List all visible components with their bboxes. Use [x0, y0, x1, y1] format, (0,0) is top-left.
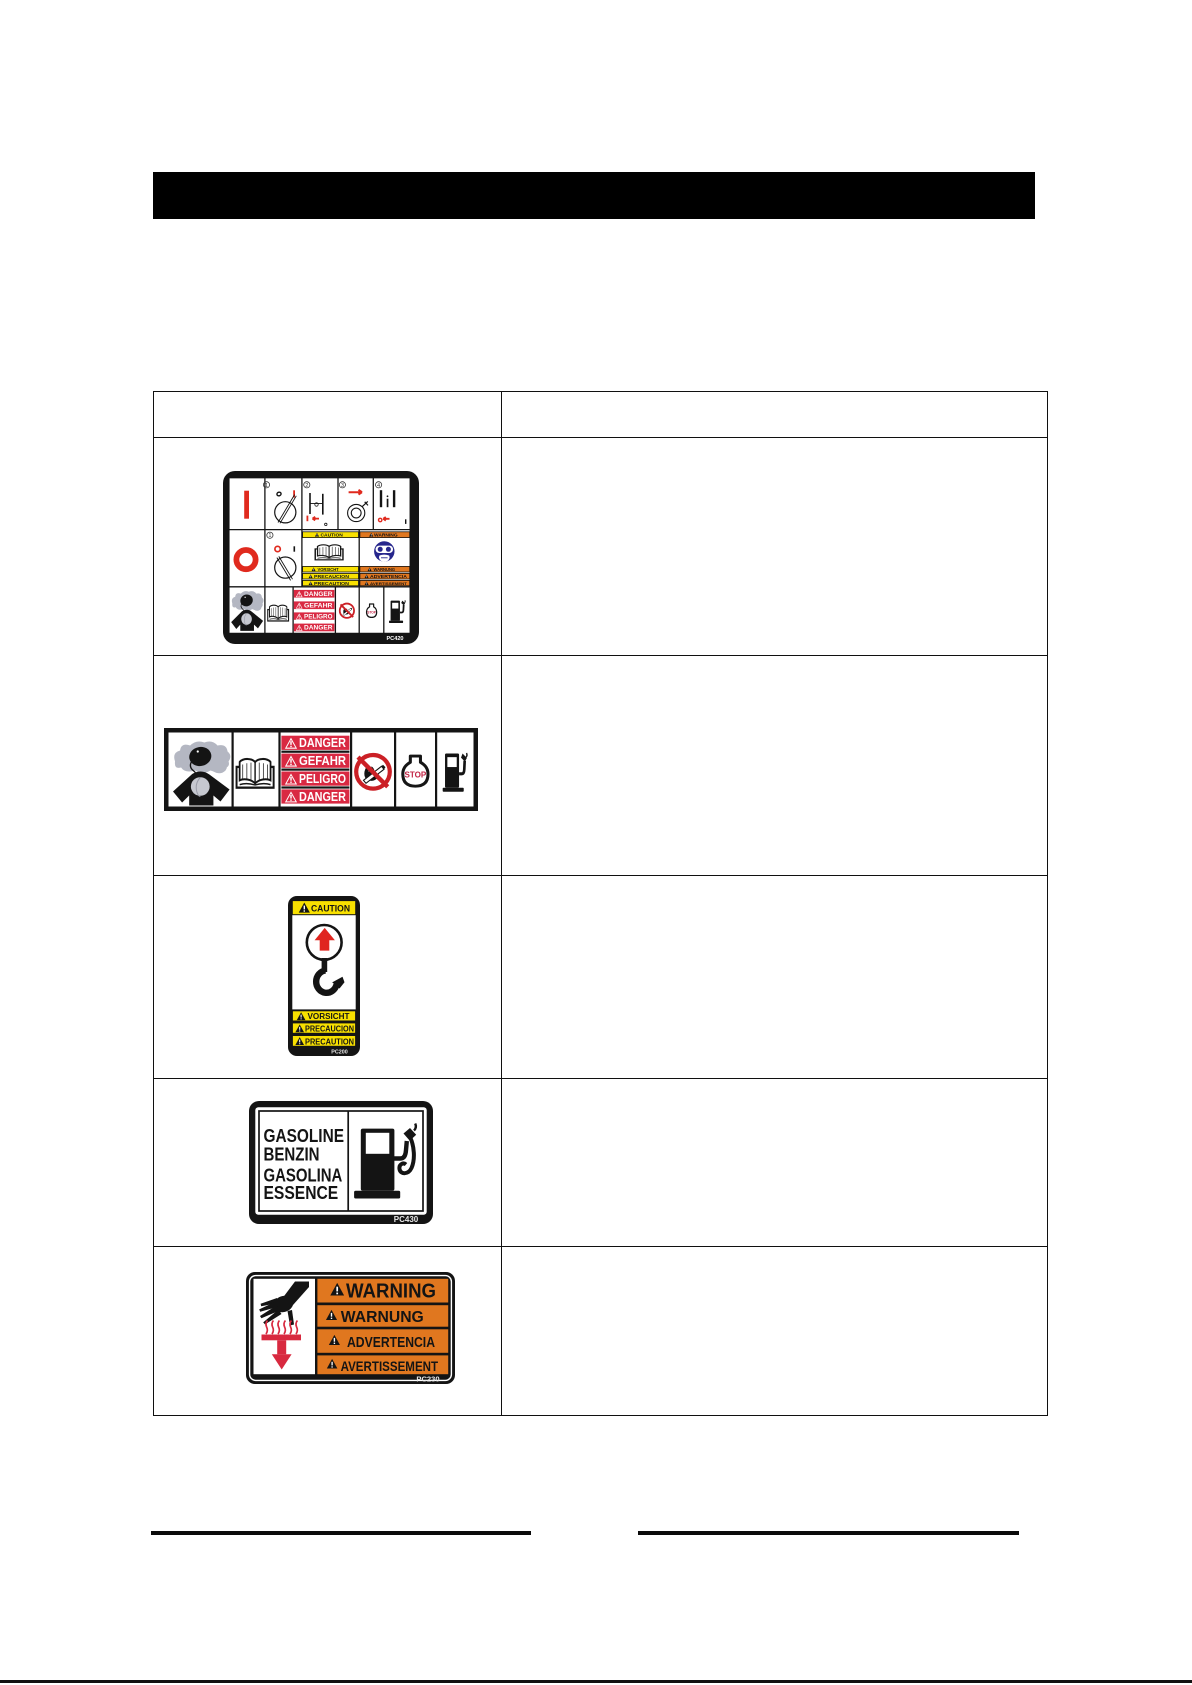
- svg-text:1: 1: [268, 533, 271, 539]
- svg-text:DANGER: DANGER: [299, 790, 346, 804]
- svg-text:BENZIN: BENZIN: [264, 1144, 320, 1165]
- svg-text:WARNING: WARNING: [346, 1279, 436, 1302]
- svg-text:PRECAUCION: PRECAUCION: [305, 1023, 354, 1033]
- svg-text:WARNUNG: WARNUNG: [341, 1309, 424, 1326]
- svg-text:PC200: PC200: [331, 1049, 347, 1055]
- svg-text:ADVERTENCIA: ADVERTENCIA: [370, 574, 407, 579]
- svg-text:GEFAHR: GEFAHR: [304, 603, 333, 610]
- svg-text:4: 4: [377, 483, 380, 489]
- svg-text:DANGER: DANGER: [299, 736, 346, 750]
- svg-text:DANGER: DANGER: [304, 591, 333, 598]
- svg-text:VORSICHT: VORSICHT: [318, 567, 340, 572]
- svg-text:2: 2: [305, 483, 308, 489]
- svg-text:3: 3: [341, 483, 344, 489]
- svg-text:PC230: PC230: [416, 1375, 439, 1384]
- svg-text:WARNUNG: WARNUNG: [374, 567, 396, 572]
- svg-text:GEFAHR: GEFAHR: [299, 754, 346, 768]
- svg-text:AVERTISSEMENT: AVERTISSEMENT: [370, 581, 408, 586]
- svg-text:CAUTION: CAUTION: [311, 904, 350, 915]
- svg-text:ESSENCE: ESSENCE: [264, 1182, 339, 1203]
- svg-text:ADVERTENCIA: ADVERTENCIA: [347, 1334, 435, 1351]
- svg-text:PRECAUTION: PRECAUTION: [305, 1036, 354, 1046]
- svg-text:CAUTION: CAUTION: [321, 533, 344, 539]
- svg-text:AVERTISSEMENT: AVERTISSEMENT: [341, 1358, 439, 1374]
- svg-text:PELIGRO: PELIGRO: [299, 772, 346, 786]
- svg-text:PRECAUCION: PRECAUCION: [314, 574, 349, 579]
- svg-text:VORSICHT: VORSICHT: [308, 1011, 351, 1021]
- svg-text:WARNING: WARNING: [374, 533, 398, 539]
- svg-text:PC430: PC430: [394, 1215, 419, 1224]
- svg-text:1: 1: [265, 483, 268, 489]
- svg-text:PC420: PC420: [386, 636, 403, 642]
- svg-text:PRECAUTION: PRECAUTION: [314, 581, 349, 586]
- svg-text:PELIGRO: PELIGRO: [304, 613, 333, 620]
- svg-text:DANGER: DANGER: [304, 625, 333, 632]
